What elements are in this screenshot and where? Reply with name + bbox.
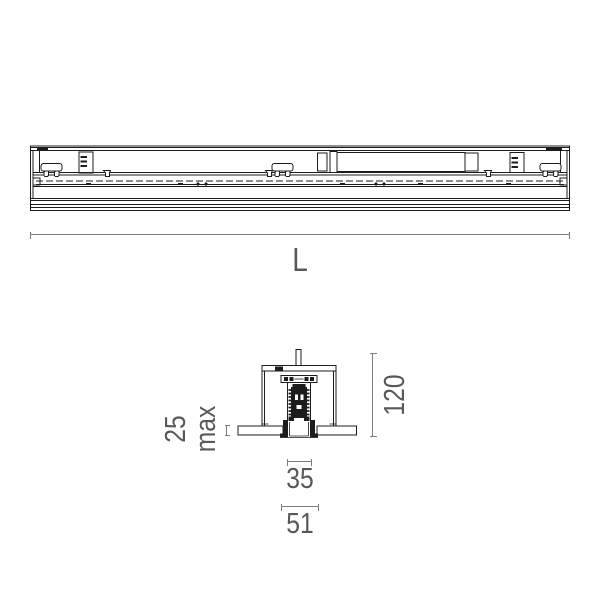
led-board-fixings bbox=[86, 182, 511, 185]
terminal-block-right bbox=[510, 153, 524, 173]
cross-section-view bbox=[235, 347, 365, 447]
side-elevation-view bbox=[30, 145, 570, 211]
dimension-tick bbox=[225, 425, 230, 426]
dimension-height-label: 120 bbox=[380, 357, 410, 434]
dimension-trim-label: 51 bbox=[279, 510, 322, 540]
dimension-height-line bbox=[372, 353, 373, 437]
dimension-tick bbox=[370, 353, 377, 354]
dimension-tick bbox=[370, 436, 377, 437]
mounting-plate bbox=[262, 366, 336, 372]
fixture-housing bbox=[30, 146, 570, 211]
dimension-tick bbox=[30, 232, 31, 239]
dimension-ceiling-thickness-label: 25 max bbox=[162, 391, 220, 468]
trim-bezel bbox=[280, 420, 318, 438]
dimension-ceiling-thickness-qualifier: max bbox=[192, 391, 222, 468]
dimension-ceiling-thickness-line bbox=[226, 425, 227, 436]
suspension-stem bbox=[296, 350, 301, 366]
dimension-aperture-line bbox=[287, 461, 312, 462]
technical-drawing-canvas: L bbox=[0, 0, 600, 600]
dimension-ceiling-thickness-value: 25 bbox=[162, 391, 192, 468]
dimension-tick bbox=[569, 232, 570, 239]
dimension-tick bbox=[225, 435, 230, 436]
dimension-length-line bbox=[30, 234, 570, 235]
dimension-length-label: L bbox=[275, 243, 326, 277]
ceiling-cutout bbox=[238, 426, 357, 435]
dimension-trim-line bbox=[281, 506, 319, 507]
terminal-block-left bbox=[79, 152, 93, 173]
dimension-aperture-label: 35 bbox=[279, 465, 322, 495]
led-driver bbox=[318, 152, 479, 173]
